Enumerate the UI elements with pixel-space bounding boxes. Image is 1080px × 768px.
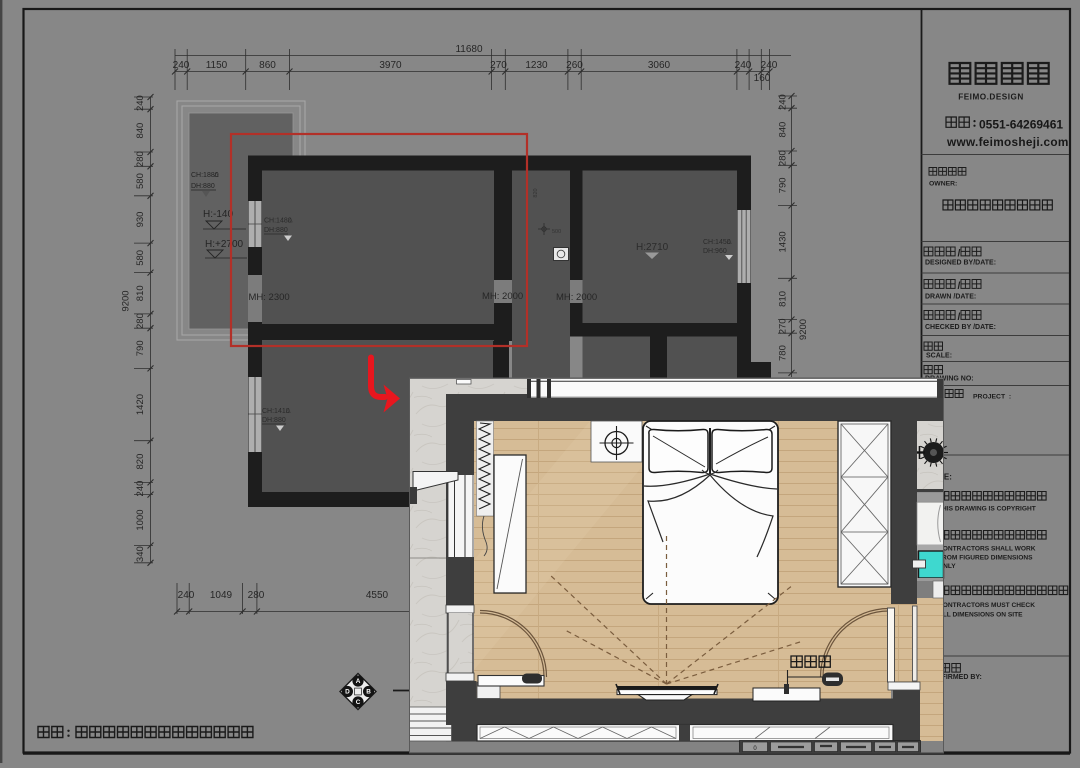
svg-text:780: 780 xyxy=(778,345,789,361)
svg-text:FROM FIGURED DIMENSIONS: FROM FIGURED DIMENSIONS xyxy=(938,554,1033,561)
svg-text:340: 340 xyxy=(135,546,146,562)
svg-text:3060: 3060 xyxy=(648,60,671,71)
svg-text:270: 270 xyxy=(778,318,789,334)
svg-text:240: 240 xyxy=(778,94,789,110)
svg-text:DRAWN /DATE:: DRAWN /DATE: xyxy=(925,294,976,301)
svg-text:△: △ xyxy=(286,408,291,414)
svg-text:△: △ xyxy=(727,239,732,245)
svg-text:820: 820 xyxy=(533,188,539,197)
svg-text:240: 240 xyxy=(135,481,146,497)
svg-text:1049: 1049 xyxy=(210,590,233,601)
svg-text:280: 280 xyxy=(135,151,146,167)
svg-text:D: D xyxy=(345,689,350,696)
svg-text:0551-64269461: 0551-64269461 xyxy=(979,118,1063,132)
svg-text:PROJECT :: PROJECT : xyxy=(973,394,1011,401)
svg-text:DH:880: DH:880 xyxy=(191,183,215,190)
svg-text:SCALE:: SCALE: xyxy=(926,353,952,360)
svg-text:270: 270 xyxy=(490,60,507,71)
svg-text:CHECKED BY /DATE:: CHECKED BY /DATE: xyxy=(925,324,996,331)
svg-text:860: 860 xyxy=(259,60,276,71)
svg-text:ALL DIMENSIONS ON SITE: ALL DIMENSIONS ON SITE xyxy=(938,612,1023,619)
svg-text:500: 500 xyxy=(552,229,561,235)
svg-text:240: 240 xyxy=(761,60,778,71)
svg-text:H:+2700: H:+2700 xyxy=(205,239,244,250)
svg-text:790: 790 xyxy=(135,340,146,356)
svg-text:260: 260 xyxy=(566,60,583,71)
svg-text:H:-140: H:-140 xyxy=(203,209,233,220)
svg-text:240: 240 xyxy=(173,60,190,71)
svg-text:820: 820 xyxy=(135,454,146,470)
svg-text:/: / xyxy=(958,249,961,260)
svg-text:790: 790 xyxy=(778,177,789,193)
svg-text:1430: 1430 xyxy=(778,231,789,252)
svg-text:160: 160 xyxy=(754,73,771,84)
svg-text:△: △ xyxy=(214,172,219,178)
svg-text:280: 280 xyxy=(778,150,789,166)
svg-text:OWNER:: OWNER: xyxy=(929,181,957,188)
svg-text:B: B xyxy=(366,689,371,696)
svg-text:11680: 11680 xyxy=(455,44,483,55)
svg-text:1000: 1000 xyxy=(135,509,146,530)
svg-text:280: 280 xyxy=(248,590,265,601)
svg-text:H:2710: H:2710 xyxy=(636,242,669,253)
svg-text:MH: 2000: MH: 2000 xyxy=(556,292,597,303)
svg-text:9200: 9200 xyxy=(798,319,809,340)
svg-text:DH:880: DH:880 xyxy=(264,227,288,234)
svg-text:DH:960: DH:960 xyxy=(703,248,727,255)
svg-text:810: 810 xyxy=(778,291,789,307)
svg-text:930: 930 xyxy=(135,212,146,228)
svg-text:DESIGNED BY/DATE:: DESIGNED BY/DATE: xyxy=(925,260,996,267)
svg-text:www.feimosheji.com: www.feimosheji.com xyxy=(946,135,1069,149)
svg-text:580: 580 xyxy=(135,173,146,189)
svg-text:1150: 1150 xyxy=(206,60,228,71)
svg-text:A: A xyxy=(356,678,361,685)
svg-text:240: 240 xyxy=(735,60,752,71)
svg-text:CONTRACTORS MUST CHECK: CONTRACTORS MUST CHECK xyxy=(938,602,1035,609)
svg-text:280: 280 xyxy=(135,313,146,329)
svg-text:THIS DRAWING IS COPYRIGHT: THIS DRAWING IS COPYRIGHT xyxy=(938,506,1036,513)
svg-text:MH: 2300: MH: 2300 xyxy=(249,292,290,303)
svg-text:240: 240 xyxy=(135,95,146,111)
svg-text:1230: 1230 xyxy=(525,60,548,71)
svg-text:1420: 1420 xyxy=(135,394,146,415)
svg-text:4550: 4550 xyxy=(366,590,389,601)
svg-text:C: C xyxy=(356,699,361,706)
svg-text:DH:880: DH:880 xyxy=(262,417,286,424)
svg-text:9200: 9200 xyxy=(121,290,132,311)
svg-text:MH: 2000: MH: 2000 xyxy=(482,291,523,302)
svg-text:580: 580 xyxy=(135,250,146,266)
svg-text:840: 840 xyxy=(778,122,789,138)
svg-text:240: 240 xyxy=(178,590,195,601)
svg-text:△: △ xyxy=(288,218,293,224)
svg-text:CONTRACTORS SHALL WORK: CONTRACTORS SHALL WORK xyxy=(938,546,1036,553)
svg-text:/: / xyxy=(958,281,961,292)
svg-text:840: 840 xyxy=(135,123,146,139)
svg-text:FEIMO.DESIGN: FEIMO.DESIGN xyxy=(958,93,1024,102)
svg-text:3970: 3970 xyxy=(379,60,402,71)
svg-text:/: / xyxy=(958,312,961,323)
svg-text:810: 810 xyxy=(135,285,146,301)
